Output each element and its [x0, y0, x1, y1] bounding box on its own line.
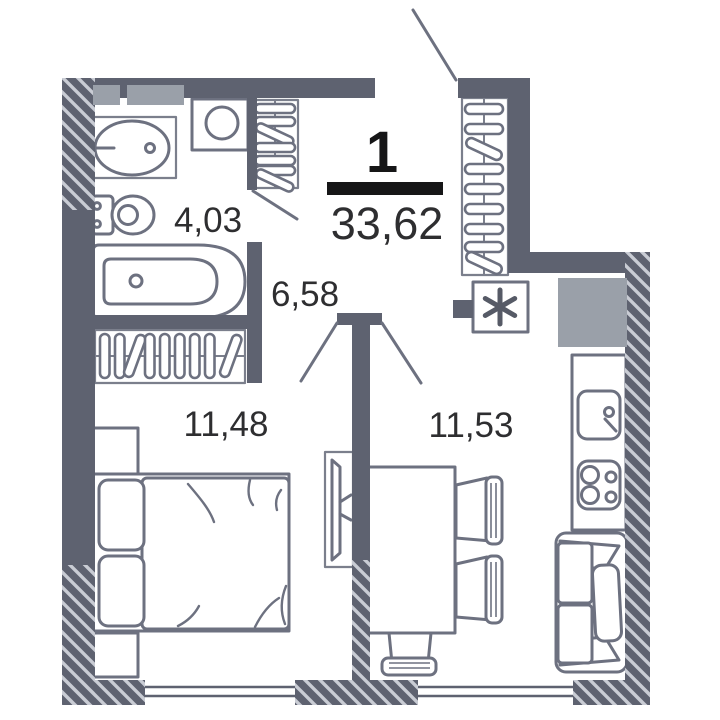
vent-shaft-icon — [127, 85, 184, 105]
door-swing-icon — [301, 323, 337, 381]
door-swing-icon — [413, 10, 456, 80]
nightstand-icon — [92, 633, 138, 677]
window-icon — [145, 677, 295, 705]
door-swing-icon — [382, 323, 421, 383]
chair-icon — [456, 477, 502, 544]
stove-icon — [578, 461, 620, 509]
bedroom-area-label: 11,48 — [184, 405, 269, 444]
tv-icon — [325, 452, 353, 567]
dining-table-icon — [368, 467, 455, 633]
door-swing-icon — [253, 191, 297, 219]
toilet-icon — [92, 196, 154, 234]
wall-entry-top — [458, 78, 530, 98]
kitchen-furniture — [368, 355, 627, 675]
floor-plan: 1 33,62 4,03 6,58 11,48 11,53 — [0, 0, 720, 720]
wardrobe-hangers-icon — [95, 330, 245, 383]
hallway-area-label: 6,58 — [271, 275, 339, 314]
title-divider — [327, 182, 443, 195]
title-block: 1 33,62 — [327, 120, 443, 249]
wall-right-upper — [508, 98, 530, 256]
washing-machine-icon — [192, 99, 248, 150]
floor-plan-svg: 1 33,62 4,03 6,58 11,48 11,53 — [0, 0, 720, 720]
wall-bathroom-right-upper — [247, 98, 257, 190]
sink-icon — [88, 117, 176, 178]
wall-bathroom-right-lower — [247, 242, 262, 383]
total-area-label: 33,62 — [331, 198, 444, 249]
fridge-asterisk-box — [473, 282, 528, 332]
sofa-icon — [556, 533, 627, 672]
bathtub-icon — [93, 245, 245, 318]
pillow-icon — [99, 556, 144, 626]
vent-shaft-icon — [93, 85, 120, 105]
wardrobe-hangers-icon — [253, 100, 298, 193]
wall-hall-T — [337, 313, 382, 325]
wall-stub-entry — [453, 300, 473, 318]
kitchen-sink-icon — [578, 391, 620, 439]
apartment-number-label: 1 — [366, 120, 398, 185]
bathroom-area-label: 4,03 — [174, 201, 242, 240]
nightstand-icon — [90, 428, 138, 474]
wall-partition — [352, 325, 370, 580]
blanket — [142, 478, 289, 629]
bedroom-furniture — [90, 428, 353, 677]
bed-icon — [93, 474, 289, 631]
chair-icon — [456, 556, 502, 623]
vent-shaft-icon — [558, 278, 627, 347]
window-icon — [418, 677, 573, 705]
kitchen-area-label: 11,53 — [429, 406, 514, 445]
chair-icon — [382, 633, 436, 675]
kitchen-counter-icon — [572, 355, 626, 530]
pillow-icon — [99, 480, 144, 550]
wardrobe-hangers-icon — [462, 98, 508, 276]
wall-bathroom-bottom — [62, 315, 262, 329]
